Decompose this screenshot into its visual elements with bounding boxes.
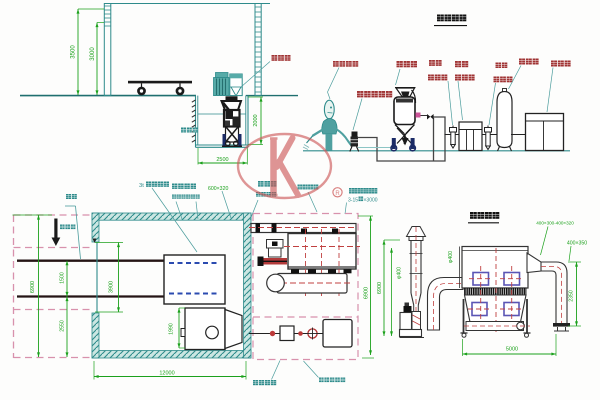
svg-text:400×300-400×320: 400×300-400×320 bbox=[536, 221, 574, 226]
svg-text:×3000: ×3000 bbox=[364, 198, 378, 204]
svg-text:3000: 3000 bbox=[90, 47, 96, 61]
svg-text:3900: 3900 bbox=[109, 281, 115, 293]
svg-text:φ400: φ400 bbox=[448, 251, 454, 263]
svg-text:2500: 2500 bbox=[216, 157, 228, 163]
svg-text:600×320: 600×320 bbox=[208, 186, 228, 192]
svg-text:3500: 3500 bbox=[71, 45, 77, 59]
svg-text:R: R bbox=[335, 191, 340, 197]
svg-text:1500: 1500 bbox=[60, 272, 66, 284]
svg-text:400×350: 400×350 bbox=[567, 241, 587, 247]
svg-text:1990: 1990 bbox=[169, 323, 175, 335]
svg-text:5000: 5000 bbox=[506, 347, 518, 353]
svg-text:φ400: φ400 bbox=[397, 267, 403, 279]
svg-text:6900: 6900 bbox=[377, 282, 383, 294]
svg-text:2550: 2550 bbox=[60, 320, 66, 332]
svg-text:6900: 6900 bbox=[30, 281, 36, 293]
svg-text:3t: 3t bbox=[139, 183, 144, 189]
svg-text:12000: 12000 bbox=[159, 371, 174, 377]
svg-text:2000: 2000 bbox=[253, 114, 259, 126]
svg-text:3-15: 3-15 bbox=[348, 198, 358, 204]
svg-text:6900: 6900 bbox=[364, 287, 370, 299]
svg-text:2350: 2350 bbox=[569, 290, 575, 302]
